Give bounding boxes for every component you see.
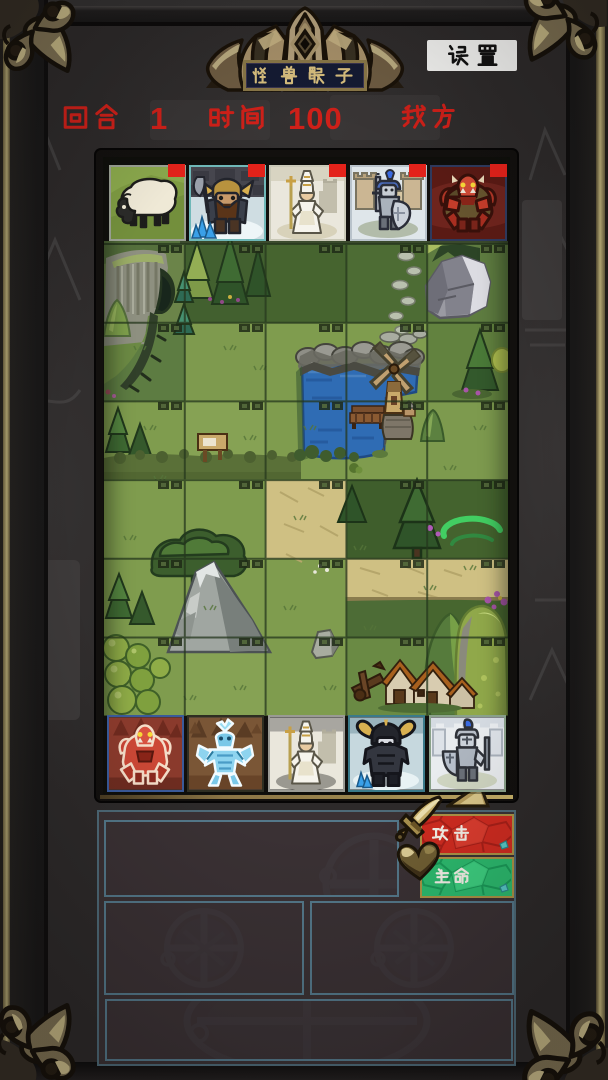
- svg-text:1: 1: [150, 101, 167, 136]
- svg-text:100: 100: [288, 101, 343, 136]
